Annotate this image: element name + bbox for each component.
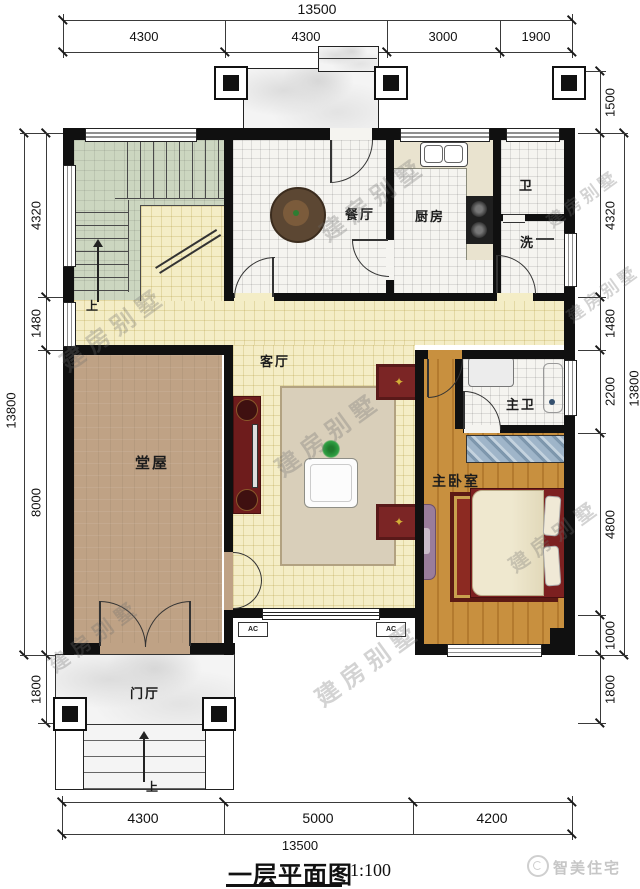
dim-top-segment: 3000 <box>403 29 483 44</box>
dim-bottom-segment: 4300 <box>103 810 183 826</box>
column-core <box>223 75 239 91</box>
brand-logo-dot <box>533 861 542 870</box>
floor-plan-canvas: 13500 4300 4300 3000 1900 4320 1480 8000… <box>0 0 640 889</box>
steps-up-label: 上 <box>146 778 160 795</box>
title-underline <box>226 884 342 887</box>
wall-stair-dining <box>224 128 233 301</box>
bathtub-drain <box>549 399 555 405</box>
dim-right-segment: 1500 <box>603 68 618 138</box>
room-label-foyer: 门厅 <box>130 683 160 702</box>
stair-up-label: 上 <box>86 297 100 314</box>
door-gap-wc <box>503 214 525 223</box>
stair-flight-top <box>115 140 224 199</box>
door-gap-laundry <box>497 293 533 301</box>
title-scale: 1:100 <box>350 860 391 881</box>
window-master-bath-right <box>564 360 577 416</box>
bath-vanity <box>468 357 514 387</box>
room-label-master-bath: 主卫 <box>506 394 536 413</box>
dim-left-segment: 1800 <box>29 655 44 725</box>
dim-ext <box>578 433 606 434</box>
steps-side-right <box>205 724 234 790</box>
dim-right-segment: 2200 <box>603 357 618 427</box>
window-wc-top <box>506 128 560 142</box>
dim-bottom-segment: 4200 <box>452 810 532 826</box>
column-core <box>383 75 399 91</box>
column <box>552 66 586 100</box>
dim-ext <box>413 802 414 834</box>
coffee-table-glass <box>310 464 352 502</box>
stove-burner <box>471 201 487 217</box>
room-label-living: 客厅 <box>260 351 290 370</box>
stove-burner <box>471 222 487 238</box>
ac-label: AC <box>248 626 258 633</box>
column-core <box>62 706 78 722</box>
room-label-hall: 堂屋 <box>135 452 169 473</box>
dining-table-centerpiece <box>293 210 299 216</box>
chimney-line <box>318 58 377 59</box>
steps-up-arrow <box>143 736 145 782</box>
room-label-wc: 卫 <box>519 175 534 194</box>
top-porch <box>243 68 379 132</box>
dim-right-total-label: 13800 <box>627 354 640 424</box>
bathtub-inner <box>543 363 563 413</box>
dim-top-segment: 4300 <box>266 29 346 44</box>
dim-line <box>46 133 47 723</box>
dim-top-total-label: 13500 <box>267 1 367 17</box>
dim-left-segment: 4320 <box>29 181 44 251</box>
tv-plant-pot <box>236 399 258 421</box>
steps-up-arrowhead <box>139 731 149 739</box>
laundry-faucet <box>536 238 554 240</box>
wardrobe <box>466 435 566 463</box>
window-stair-left <box>63 165 76 267</box>
column <box>202 697 236 731</box>
dim-bottom-segment: 5000 <box>278 810 358 826</box>
door-gap-bedroom <box>428 350 462 359</box>
room-label-master-bedroom: 主卧室 <box>432 471 480 491</box>
column-core <box>211 706 227 722</box>
dim-top-segment: 4300 <box>104 29 184 44</box>
kitchen-sink-basin <box>424 145 443 163</box>
tv-plant-pot <box>236 489 258 511</box>
dim-line <box>62 834 572 835</box>
dim-top-segment: 1900 <box>496 29 576 44</box>
ac-unit: AC <box>238 622 268 637</box>
dim-left-segment: 8000 <box>29 468 44 538</box>
window-stair-top <box>85 128 197 142</box>
dim-line <box>63 20 572 21</box>
tv-screen <box>252 424 258 488</box>
column <box>374 66 408 100</box>
dim-line <box>624 133 625 655</box>
brand-logo-icon <box>527 855 549 877</box>
brand-text: 智美住宅 <box>553 857 621 878</box>
dim-right-segment: 4800 <box>603 490 618 560</box>
window-bedroom-south <box>447 644 542 657</box>
dim-ext <box>224 802 225 834</box>
door-gap-porch <box>330 128 372 140</box>
door-gap-hall-living <box>224 552 233 610</box>
chimney <box>318 46 379 72</box>
hall-floor <box>74 355 222 643</box>
steps-side-left <box>55 724 84 790</box>
kitchen-sink-basin <box>444 145 463 163</box>
dim-left-total-label: 13800 <box>4 376 19 446</box>
column <box>53 697 87 731</box>
window-kitchen-top <box>400 128 490 142</box>
stair-up-arrowhead <box>93 239 103 247</box>
column-core <box>561 75 577 91</box>
dim-line <box>62 802 572 803</box>
wall-corner-se <box>550 628 575 655</box>
stair-up-arrow <box>97 244 99 302</box>
window-living-south <box>262 608 380 620</box>
dim-right-segment: 1800 <box>603 655 618 725</box>
window-laundry-right <box>564 233 577 287</box>
dim-left-segment: 1480 <box>29 289 44 359</box>
room-label-laundry: 洗 <box>520 232 535 251</box>
room-label-kitchen: 厨房 <box>415 206 445 225</box>
dim-line <box>24 133 25 655</box>
dim-bottom-total-label: 13500 <box>250 838 350 853</box>
column <box>214 66 248 100</box>
watermark: 建房别墅 <box>307 612 428 713</box>
dim-ext <box>20 133 63 134</box>
